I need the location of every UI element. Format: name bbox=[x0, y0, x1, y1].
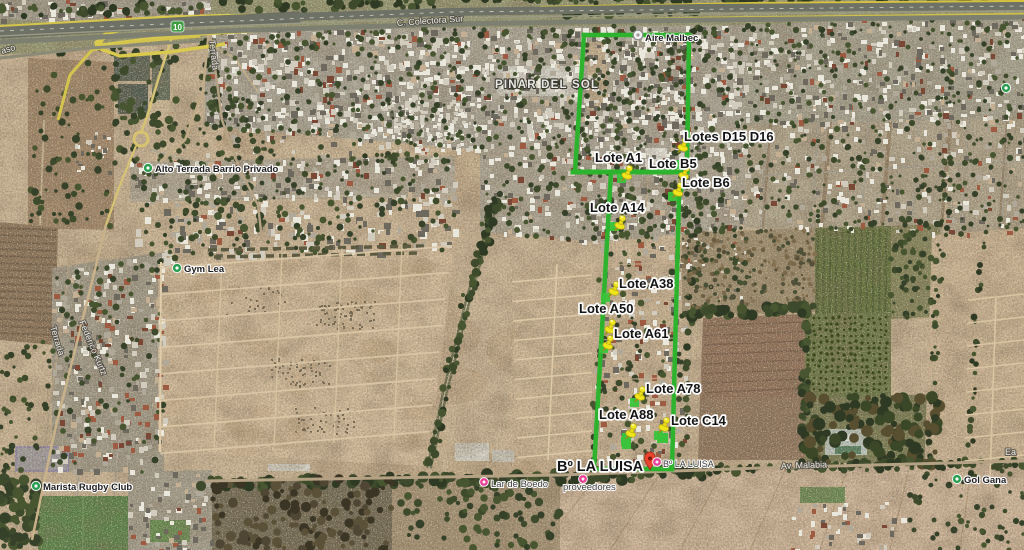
svg-text:Gym Lea: Gym Lea bbox=[184, 264, 225, 275]
svg-text:Lote A38: Lote A38 bbox=[619, 276, 673, 291]
svg-text:Bº LA LUISA: Bº LA LUISA bbox=[557, 459, 644, 475]
svg-text:Lote B6: Lote B6 bbox=[682, 175, 730, 190]
svg-text:Lote A14: Lote A14 bbox=[590, 200, 645, 215]
svg-text:Lote C14: Lote C14 bbox=[671, 413, 727, 428]
svg-text:Av. Malabia: Av. Malabia bbox=[781, 459, 828, 471]
svg-text:10: 10 bbox=[173, 23, 182, 32]
svg-text:Marista Rugby Club: Marista Rugby Club bbox=[43, 482, 132, 493]
svg-text:Alto Terrada Barrio Privado: Alto Terrada Barrio Privado bbox=[155, 164, 279, 175]
svg-text:Lote B5: Lote B5 bbox=[649, 156, 697, 171]
svg-text:Aire Malbec: Aire Malbec bbox=[645, 33, 698, 44]
svg-text:proveedores: proveedores bbox=[563, 482, 616, 493]
svg-text:Lote A78: Lote A78 bbox=[646, 381, 700, 396]
svg-text:Gol Gana: Gol Gana bbox=[964, 475, 1007, 486]
svg-text:Lote A50: Lote A50 bbox=[579, 301, 633, 316]
svg-text:Lote A61: Lote A61 bbox=[614, 326, 668, 341]
svg-text:PINAR DEL SOL: PINAR DEL SOL bbox=[495, 79, 599, 91]
svg-text:Lote A1: Lote A1 bbox=[595, 150, 642, 165]
svg-text:Bº LA LUISA: Bº LA LUISA bbox=[663, 459, 714, 469]
svg-text:Lote A88: Lote A88 bbox=[599, 407, 653, 422]
svg-text:Lotes D15 D16: Lotes D15 D16 bbox=[684, 129, 774, 144]
svg-text:Lar de Boedo: Lar de Boedo bbox=[491, 479, 548, 490]
svg-text:Ea: Ea bbox=[1005, 447, 1016, 457]
